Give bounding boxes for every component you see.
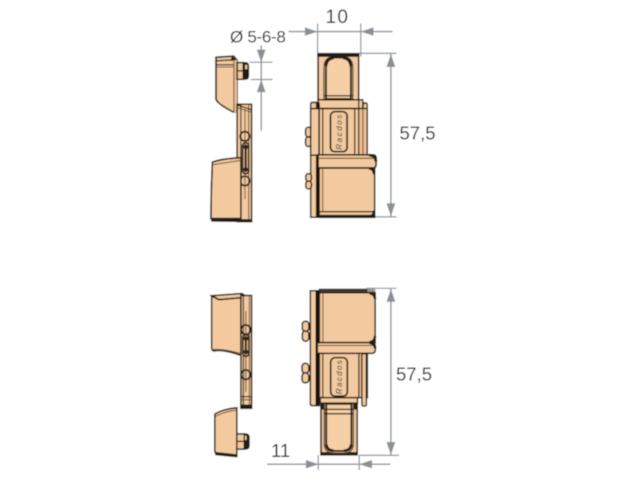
svg-text:57,5: 57,5: [396, 364, 432, 385]
svg-text:10: 10: [326, 7, 350, 28]
svg-text:11: 11: [271, 440, 290, 461]
svg-text:57,5: 57,5: [400, 123, 436, 144]
svg-text:Ø 5-6-8: Ø 5-6-8: [230, 28, 286, 47]
